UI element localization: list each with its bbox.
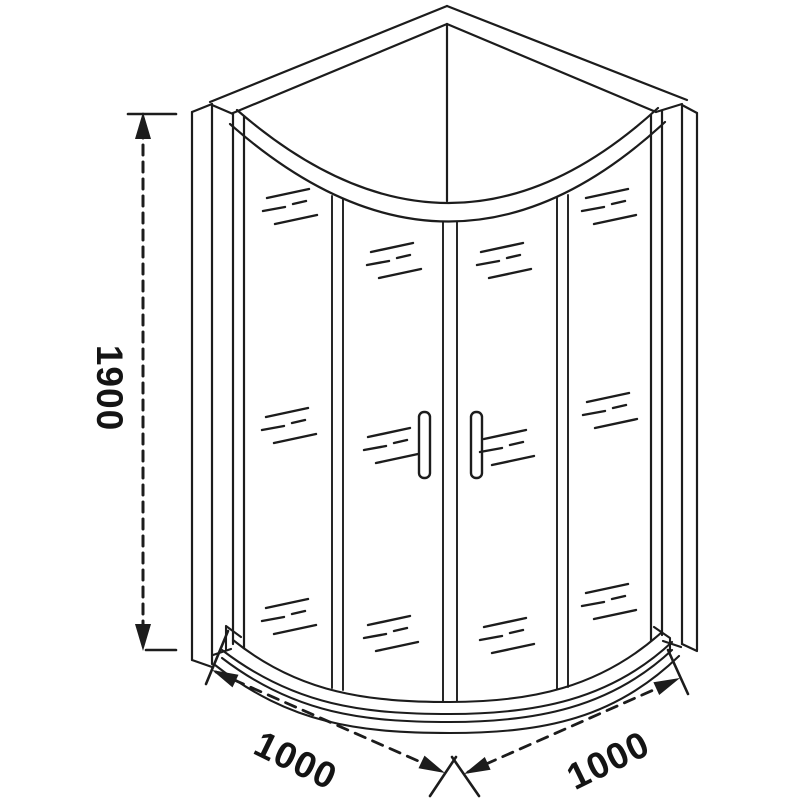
drawing-canvas: 1900 1000 1000 xyxy=(0,0,800,800)
door-handle-left xyxy=(419,412,430,478)
door-handle-right xyxy=(471,412,482,478)
height-dimension-label: 1900 xyxy=(89,345,130,431)
shower-enclosure-dimension-drawing: 1900 1000 1000 xyxy=(0,0,800,800)
